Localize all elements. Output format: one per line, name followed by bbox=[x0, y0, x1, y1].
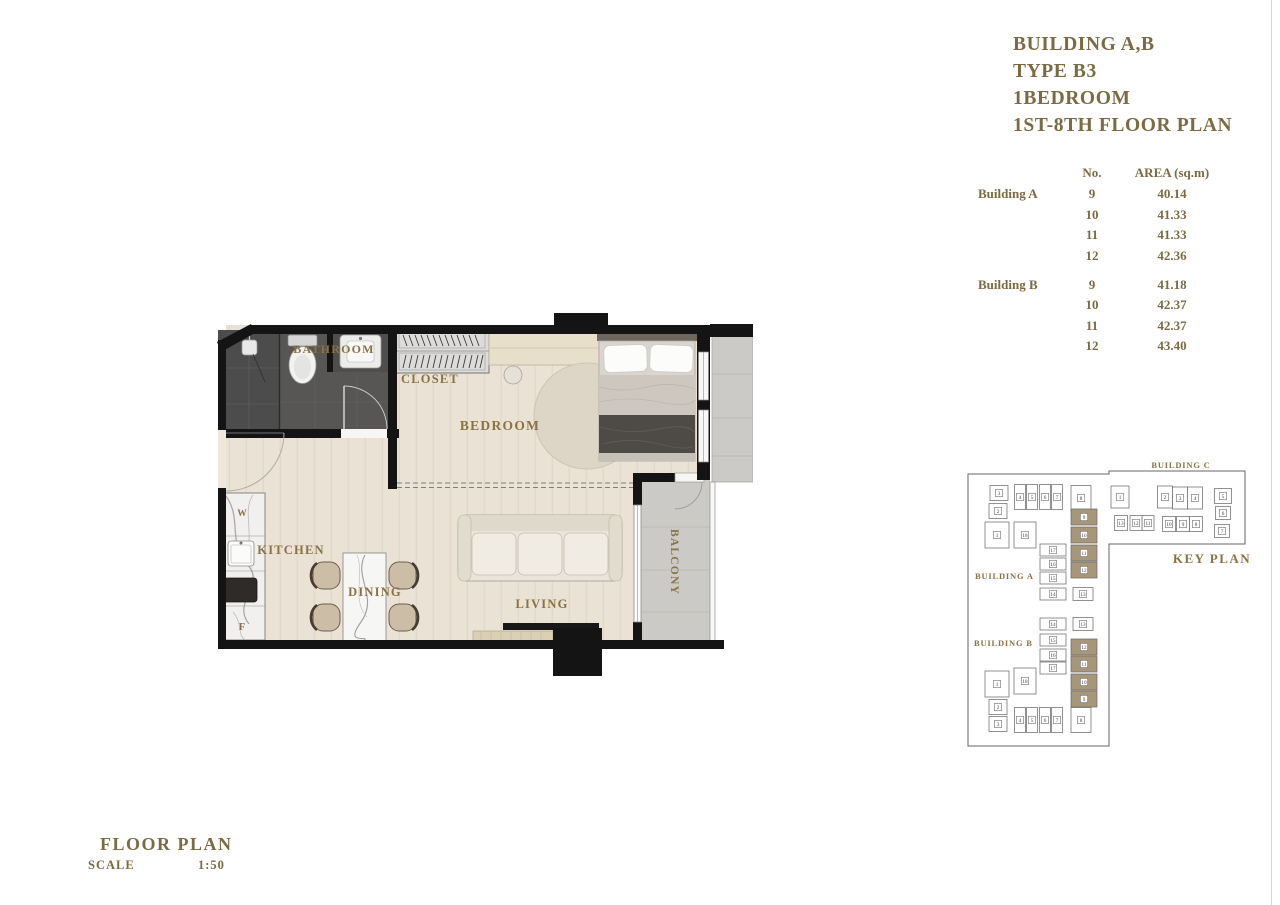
building-b-label: BUILDING B bbox=[974, 638, 1033, 648]
svg-text:14: 14 bbox=[1050, 622, 1056, 628]
svg-text:2: 2 bbox=[1164, 495, 1167, 501]
key-plan-unit: 13 bbox=[1073, 618, 1093, 631]
svg-text:12: 12 bbox=[1133, 521, 1139, 527]
unit-no-cell: 10 bbox=[1068, 207, 1116, 223]
svg-text:6: 6 bbox=[1222, 511, 1225, 517]
area-table-rows: Building A940.141041.331141.331242.36Bui… bbox=[978, 184, 1228, 357]
svg-text:18: 18 bbox=[1022, 533, 1028, 539]
svg-text:9: 9 bbox=[1182, 522, 1185, 528]
svg-text:8: 8 bbox=[1080, 496, 1083, 502]
svg-text:9: 9 bbox=[1083, 515, 1086, 521]
svg-text:9: 9 bbox=[1083, 697, 1086, 703]
svg-text:10: 10 bbox=[1081, 680, 1087, 686]
unit-area-cell: 41.33 bbox=[1116, 227, 1228, 243]
sofa-cushion bbox=[564, 533, 608, 575]
key-plan-unit: 10 bbox=[1163, 517, 1176, 532]
key-plan-unit: 5 bbox=[1215, 489, 1232, 504]
svg-text:1: 1 bbox=[996, 533, 999, 539]
key-plan-unit: 3 bbox=[1173, 487, 1188, 509]
area-table-row: Building A940.14 bbox=[978, 184, 1228, 205]
closet-kitchen-wall bbox=[388, 325, 397, 489]
key-plan-unit: 4 bbox=[1015, 708, 1026, 733]
col-header-area: AREA (sq.m) bbox=[1116, 165, 1228, 181]
svg-text:8: 8 bbox=[1195, 522, 1198, 528]
svg-text:7: 7 bbox=[1056, 495, 1059, 501]
svg-text:15: 15 bbox=[1050, 576, 1056, 582]
key-plan-unit: 18 bbox=[1014, 522, 1036, 548]
key-plan-unit: 13 bbox=[1073, 588, 1093, 601]
svg-text:5: 5 bbox=[1031, 718, 1034, 724]
svg-text:7: 7 bbox=[1221, 529, 1224, 535]
balcony-railing bbox=[710, 482, 715, 645]
key-plan-unit: 16 bbox=[1040, 558, 1066, 570]
unit-no-cell: 12 bbox=[1068, 338, 1116, 354]
svg-text:12: 12 bbox=[1081, 645, 1087, 651]
key-plan-unit: 10 bbox=[1071, 527, 1097, 543]
key-plan-unit: 8 bbox=[1190, 517, 1203, 532]
svg-text:15: 15 bbox=[1050, 638, 1056, 644]
floor-plan-drawing: BATHROOM CLOSET BEDROOM KITCHEN DINING L… bbox=[213, 312, 753, 677]
top-column bbox=[554, 313, 608, 333]
footer-title: FLOOR PLAN bbox=[100, 834, 233, 855]
area-table-row: 1242.36 bbox=[978, 246, 1228, 267]
svg-text:1: 1 bbox=[1119, 495, 1122, 501]
svg-text:4: 4 bbox=[1019, 495, 1022, 501]
svg-text:18: 18 bbox=[1022, 679, 1028, 685]
dining-chair bbox=[311, 562, 340, 589]
dining-chair bbox=[311, 604, 340, 631]
title-line-bedroom: 1BEDROOM bbox=[1013, 85, 1232, 112]
key-plan-unit: 5 bbox=[1027, 485, 1038, 510]
key-plan-unit: 1 bbox=[1111, 486, 1129, 508]
key-plan-unit: 12 bbox=[1130, 516, 1142, 531]
svg-text:13: 13 bbox=[1118, 521, 1124, 527]
unit-no-cell: 11 bbox=[1068, 318, 1116, 334]
title-block: BUILDING A,B TYPE B3 1BEDROOM 1ST-8TH FL… bbox=[1013, 31, 1232, 139]
unit-no-cell: 9 bbox=[1068, 277, 1116, 293]
svg-text:2: 2 bbox=[997, 509, 1000, 515]
kitchen-label: KITCHEN bbox=[257, 543, 324, 557]
floor-plan-page: BUILDING A,B TYPE B3 1BEDROOM 1ST-8TH FL… bbox=[0, 0, 1280, 905]
bathroom-door-opening bbox=[341, 429, 387, 438]
building-name-cell: Building B bbox=[978, 277, 1068, 293]
svg-text:13: 13 bbox=[1080, 592, 1086, 598]
sofa bbox=[458, 515, 622, 581]
key-plan-unit: 8 bbox=[1071, 486, 1091, 511]
unit-no-cell: 12 bbox=[1068, 248, 1116, 264]
svg-text:10: 10 bbox=[1166, 522, 1172, 528]
bedroom-window-wall bbox=[697, 334, 710, 480]
unit-area-cell: 42.36 bbox=[1116, 248, 1228, 264]
unit-no-cell: 9 bbox=[1068, 186, 1116, 202]
building-a-label: BUILDING A bbox=[975, 571, 1034, 581]
living-label: LIVING bbox=[515, 597, 568, 611]
area-table-row: 1141.33 bbox=[978, 225, 1228, 246]
key-plan-unit: 15 bbox=[1040, 572, 1066, 584]
key-plan-unit: 13 bbox=[1115, 516, 1128, 531]
key-plan-unit: 7 bbox=[1052, 485, 1063, 510]
key-plan-unit: 4 bbox=[1188, 487, 1203, 509]
key-plan-unit: 11 bbox=[1071, 545, 1097, 561]
svg-text:2: 2 bbox=[997, 705, 1000, 711]
closet-label: CLOSET bbox=[401, 372, 459, 386]
stool bbox=[504, 366, 522, 384]
svg-text:10: 10 bbox=[1081, 533, 1087, 539]
building-name-cell: Building A bbox=[978, 186, 1068, 202]
area-table-row: Building B941.18 bbox=[978, 274, 1228, 295]
svg-text:14: 14 bbox=[1050, 592, 1056, 598]
key-plan-unit: 9 bbox=[1177, 517, 1190, 532]
svg-text:16: 16 bbox=[1050, 562, 1056, 568]
key-plan-unit: 9 bbox=[1071, 691, 1097, 707]
bed-throw bbox=[599, 415, 695, 457]
key-plan-unit: 1 bbox=[985, 671, 1009, 697]
key-plan-unit: 6 bbox=[1216, 507, 1231, 520]
kitchen-sink bbox=[228, 541, 254, 566]
page-edge-line bbox=[1271, 0, 1272, 905]
key-plan-unit: 2 bbox=[1158, 486, 1173, 508]
svg-text:13: 13 bbox=[1080, 622, 1086, 628]
area-table: No. AREA (sq.m) Building A940.141041.331… bbox=[978, 162, 1228, 357]
key-plan-unit: 6 bbox=[1040, 485, 1051, 510]
key-plan-unit: 8 bbox=[1071, 708, 1091, 733]
svg-text:17: 17 bbox=[1050, 548, 1056, 554]
unit-area-cell: 43.40 bbox=[1116, 338, 1228, 354]
washer-label: W bbox=[237, 509, 247, 519]
area-table-header: No. AREA (sq.m) bbox=[978, 162, 1228, 184]
key-plan-unit: 9 bbox=[1071, 509, 1097, 525]
footer-scale-value: 1:50 bbox=[198, 858, 225, 873]
key-plan-unit: 11 bbox=[1071, 656, 1097, 672]
unit-area-cell: 42.37 bbox=[1116, 297, 1228, 313]
key-plan-unit: 3 bbox=[990, 486, 1008, 501]
key-plan-unit: 12 bbox=[1071, 562, 1097, 578]
svg-text:8: 8 bbox=[1080, 718, 1083, 724]
area-table-row: 1142.37 bbox=[978, 316, 1228, 337]
unit-area-cell: 40.14 bbox=[1116, 186, 1228, 202]
key-plan-unit: 7 bbox=[1215, 525, 1230, 538]
footer-scale-label: SCALE bbox=[88, 858, 135, 873]
area-table-row: 1041.33 bbox=[978, 205, 1228, 226]
svg-text:12: 12 bbox=[1081, 568, 1087, 574]
svg-text:6: 6 bbox=[1044, 718, 1047, 724]
svg-text:6: 6 bbox=[1044, 495, 1047, 501]
balcony-label: BALCONY bbox=[668, 529, 680, 595]
key-plan-unit: 7 bbox=[1052, 708, 1063, 733]
title-line-building: BUILDING A,B bbox=[1013, 31, 1232, 58]
sofa-cushion bbox=[518, 533, 562, 575]
title-line-floors: 1ST-8TH FLOOR PLAN bbox=[1013, 112, 1232, 139]
cooktop bbox=[224, 578, 257, 602]
key-plan-unit: 5 bbox=[1027, 708, 1038, 733]
dining-label: DINING bbox=[348, 585, 402, 599]
svg-text:11: 11 bbox=[1082, 662, 1087, 668]
key-plan-unit: 14 bbox=[1040, 588, 1066, 600]
svg-text:1: 1 bbox=[996, 682, 999, 688]
key-plan: 1234567891011121314151617181234567891011… bbox=[962, 458, 1252, 756]
top-right-corner bbox=[710, 324, 753, 337]
unit-area-cell: 42.37 bbox=[1116, 318, 1228, 334]
bottom-column bbox=[553, 628, 602, 676]
key-plan-unit: 17 bbox=[1040, 662, 1066, 674]
key-plan-unit: 2 bbox=[989, 700, 1007, 715]
building-c-label: BUILDING C bbox=[1151, 460, 1210, 470]
key-plan-unit: 16 bbox=[1040, 649, 1066, 661]
sofa-cushion bbox=[472, 533, 516, 575]
unit-no-cell: 11 bbox=[1068, 227, 1116, 243]
svg-text:3: 3 bbox=[1179, 496, 1182, 502]
svg-text:3: 3 bbox=[997, 722, 1000, 728]
svg-text:11: 11 bbox=[1146, 521, 1151, 527]
svg-text:5: 5 bbox=[1031, 495, 1034, 501]
key-plan-outline bbox=[968, 471, 1245, 746]
key-plan-unit: 14 bbox=[1040, 618, 1066, 630]
key-plan-unit: 17 bbox=[1040, 544, 1066, 556]
key-plan-unit: 11 bbox=[1142, 516, 1154, 531]
key-plan-unit: 18 bbox=[1014, 668, 1036, 694]
svg-text:7: 7 bbox=[1056, 718, 1059, 724]
key-plan-unit: 10 bbox=[1071, 674, 1097, 690]
pillow bbox=[604, 344, 648, 372]
bedroom-label: BEDROOM bbox=[460, 418, 540, 433]
unit-no-cell: 10 bbox=[1068, 297, 1116, 313]
side-ledge bbox=[712, 330, 753, 482]
col-header-no: No. bbox=[1068, 165, 1116, 181]
bed bbox=[597, 332, 697, 461]
svg-text:11: 11 bbox=[1082, 551, 1087, 557]
key-plan-title: KEY PLAN bbox=[1173, 551, 1251, 566]
key-plan-unit: 12 bbox=[1071, 639, 1097, 655]
area-table-row: 1042.37 bbox=[978, 295, 1228, 316]
closet-wardrobe bbox=[395, 330, 489, 373]
area-table-row: 1243.40 bbox=[978, 336, 1228, 357]
svg-text:5: 5 bbox=[1222, 494, 1225, 500]
key-plan-unit: 4 bbox=[1015, 485, 1026, 510]
fridge-label: F bbox=[239, 622, 245, 633]
key-plan-unit: 1 bbox=[985, 522, 1009, 548]
key-plan-unit: 2 bbox=[989, 504, 1007, 519]
key-plan-unit: 15 bbox=[1040, 634, 1066, 646]
pillow bbox=[650, 344, 694, 372]
svg-text:4: 4 bbox=[1194, 496, 1197, 502]
svg-text:3: 3 bbox=[998, 491, 1001, 497]
svg-text:17: 17 bbox=[1050, 666, 1056, 672]
bathroom-label: BATHROOM bbox=[293, 342, 374, 356]
svg-text:16: 16 bbox=[1050, 653, 1056, 659]
title-line-type: TYPE B3 bbox=[1013, 58, 1232, 85]
key-plan-unit: 3 bbox=[989, 717, 1007, 732]
unit-area-cell: 41.33 bbox=[1116, 207, 1228, 223]
key-plan-unit: 6 bbox=[1040, 708, 1051, 733]
unit-area-cell: 41.18 bbox=[1116, 277, 1228, 293]
svg-text:4: 4 bbox=[1019, 718, 1022, 724]
dining-chair bbox=[389, 604, 418, 631]
